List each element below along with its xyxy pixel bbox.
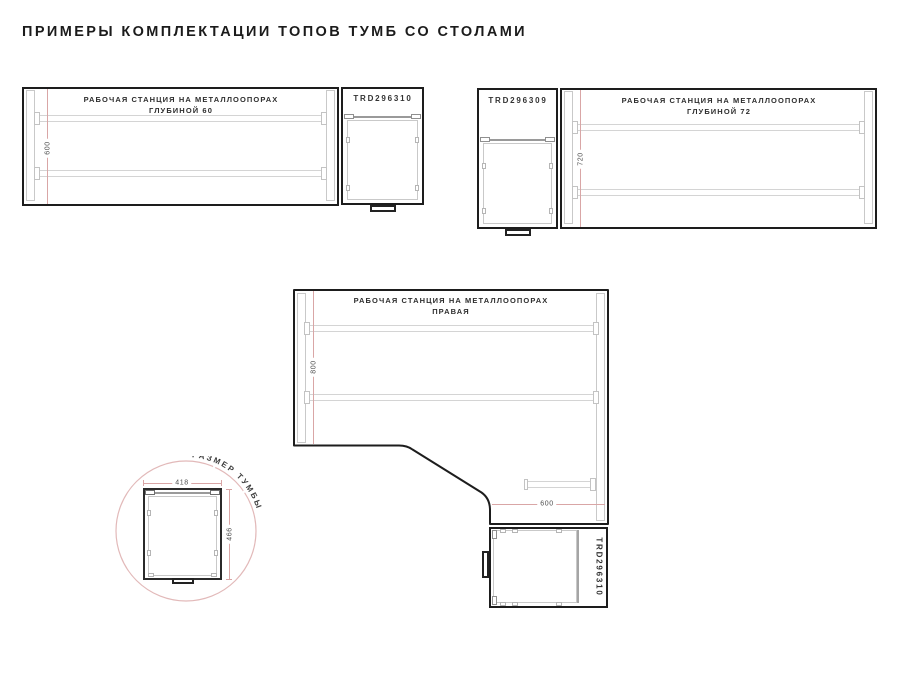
catalog-page: ПРИМЕРЫ КОМПЛЕКТАЦИИ ТОПОВ ТУМБ СО СТОЛА… bbox=[0, 0, 900, 675]
cabinet-tab bbox=[500, 602, 506, 606]
desk60-right-support-strip bbox=[326, 90, 335, 201]
cabinet-corner-bracket bbox=[492, 530, 497, 539]
corner-desk-title-line1: РАБОЧАЯ СТАНЦИЯ НА МЕТАЛЛООПОРАХ bbox=[354, 297, 549, 305]
cabinet-handle bbox=[505, 229, 531, 236]
rail-end-cap bbox=[524, 479, 528, 490]
cabinet-tab bbox=[415, 137, 419, 143]
desk60-depth-dimension: 600 bbox=[44, 138, 53, 157]
desk60-left-support-strip bbox=[26, 90, 35, 201]
cabinet-back-edge bbox=[481, 139, 554, 141]
cabinet-corner-bracket bbox=[480, 137, 490, 142]
corner-desk-rail-middle bbox=[306, 394, 596, 401]
rail-bracket bbox=[321, 112, 327, 125]
cabinet-tab bbox=[556, 529, 562, 533]
desk72-title-line1: РАБОЧАЯ СТАНЦИЯ НА МЕТАЛЛООПОРАХ bbox=[622, 97, 817, 105]
cabinet-back-edge bbox=[146, 492, 219, 494]
corner-desk-left-support-strip bbox=[297, 293, 306, 443]
cabinet-tab bbox=[415, 185, 419, 191]
desk60-cabinet-box: TRD296310 bbox=[341, 87, 424, 205]
cabinet-inner-outline bbox=[483, 143, 552, 224]
rail-bracket bbox=[34, 167, 40, 180]
desk72-rail-top bbox=[574, 124, 863, 131]
rail-bracket bbox=[321, 167, 327, 180]
cabinet-tab bbox=[512, 529, 518, 533]
cabinet-corner-bracket bbox=[210, 490, 220, 495]
desk72-title-line2: ГЛУБИНОЙ 72 bbox=[687, 108, 751, 116]
rail-bracket bbox=[572, 121, 578, 134]
cabinet-back-edge bbox=[577, 530, 579, 603]
dimension-tick bbox=[226, 579, 232, 580]
desk72-left-support-strip bbox=[564, 91, 573, 224]
dimension-tick bbox=[226, 489, 232, 490]
corner-desk-return-dimension: 600 bbox=[537, 500, 556, 509]
cabinet-handle bbox=[172, 578, 194, 584]
rail-bracket bbox=[593, 322, 599, 335]
dimension-tick bbox=[221, 480, 222, 486]
corner-desk-rail-top bbox=[306, 325, 596, 332]
cabinet-inner-outline bbox=[148, 496, 217, 576]
rail-bracket bbox=[572, 186, 578, 199]
cabinet-tab bbox=[346, 137, 350, 143]
cabinet-tab bbox=[512, 602, 518, 606]
cabinet-tab bbox=[147, 550, 151, 556]
cabinet-corner-bracket bbox=[411, 114, 421, 119]
cabinet-tab bbox=[549, 208, 553, 214]
desk72-cabinet-code: TRD296309 bbox=[488, 96, 547, 105]
page-title: ПРИМЕРЫ КОМПЛЕКТАЦИИ ТОПОВ ТУМБ СО СТОЛА… bbox=[22, 24, 527, 40]
desk72-top-outline: 720 РАБОЧАЯ СТАНЦИЯ НА МЕТАЛЛООПОРАХ ГЛУ… bbox=[560, 88, 877, 229]
corner-desk-depth-dimension: 800 bbox=[310, 357, 319, 376]
cabinet-tab bbox=[214, 550, 218, 556]
corner-desk-container: 800 600 РАБОЧАЯ СТАНЦИЯ НА МЕТАЛЛООПОРАХ… bbox=[293, 289, 610, 529]
corner-desk-rail-return bbox=[527, 481, 591, 488]
size-detail-depth-dimension: 466 bbox=[226, 524, 235, 543]
rail-bracket bbox=[304, 322, 310, 335]
corner-desk-cabinet-box: TRD296310 bbox=[489, 527, 608, 608]
size-detail-cabinet-box bbox=[143, 488, 222, 580]
cabinet-inner-outline bbox=[347, 120, 418, 200]
rail-bracket bbox=[859, 186, 865, 199]
cabinet-tab bbox=[549, 163, 553, 169]
cabinet-tab bbox=[211, 573, 217, 577]
cabinet-corner-bracket bbox=[145, 490, 155, 495]
desk72-depth-dimension: 720 bbox=[577, 149, 586, 168]
cabinet-tab bbox=[482, 208, 486, 214]
desk60-rail-bottom bbox=[36, 170, 325, 177]
desk60-top-outline: 600 РАБОЧАЯ СТАНЦИЯ НА МЕТАЛЛООПОРАХ ГЛУ… bbox=[22, 87, 339, 206]
desk60-title-line2: ГЛУБИНОЙ 60 bbox=[149, 107, 213, 115]
cabinet-tab bbox=[148, 573, 154, 577]
desk60-rail-top bbox=[36, 115, 325, 122]
cabinet-tab bbox=[556, 602, 562, 606]
cabinet-corner-bracket bbox=[545, 137, 555, 142]
rail-bracket bbox=[34, 112, 40, 125]
rail-bracket bbox=[859, 121, 865, 134]
size-detail-width-dimension: 418 bbox=[172, 479, 191, 488]
cabinet-tab bbox=[482, 163, 486, 169]
desk72-right-support-strip bbox=[864, 91, 873, 224]
desk72-rail-bottom bbox=[574, 189, 863, 196]
desk60-cabinet-code: TRD296310 bbox=[353, 94, 412, 103]
rail-bracket bbox=[304, 391, 310, 404]
corner-desk-cabinet-code: TRD296310 bbox=[595, 537, 604, 596]
cabinet-handle bbox=[370, 205, 396, 212]
cabinet-inner-outline bbox=[493, 530, 577, 603]
cabinet-handle bbox=[482, 551, 489, 578]
rail-bracket bbox=[593, 391, 599, 404]
dimension-tick bbox=[143, 480, 144, 486]
cabinet-tab bbox=[214, 510, 218, 516]
rail-bracket bbox=[590, 478, 596, 491]
cabinet-tab bbox=[147, 510, 151, 516]
cabinet-corner-bracket bbox=[344, 114, 354, 119]
cabinet-back-edge bbox=[345, 116, 420, 118]
desk60-title-line1: РАБОЧАЯ СТАНЦИЯ НА МЕТАЛЛООПОРАХ bbox=[84, 96, 279, 104]
cabinet-tab bbox=[500, 529, 506, 533]
cabinet-tab bbox=[346, 185, 350, 191]
corner-desk-title-line2: ПРАВАЯ bbox=[432, 308, 470, 316]
desk72-cabinet-box: TRD296309 bbox=[477, 88, 558, 229]
cabinet-corner-bracket bbox=[492, 596, 497, 605]
